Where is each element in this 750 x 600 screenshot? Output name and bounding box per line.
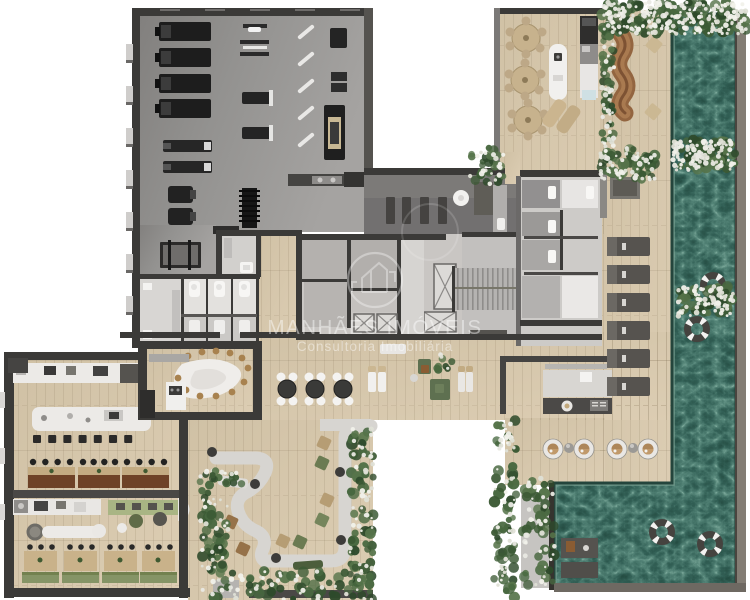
svg-text:MANHÃES IMÓVEIS: MANHÃES IMÓVEIS <box>267 316 482 339</box>
svg-text:Consultoria Imobiliária: Consultoria Imobiliária <box>297 339 454 354</box>
